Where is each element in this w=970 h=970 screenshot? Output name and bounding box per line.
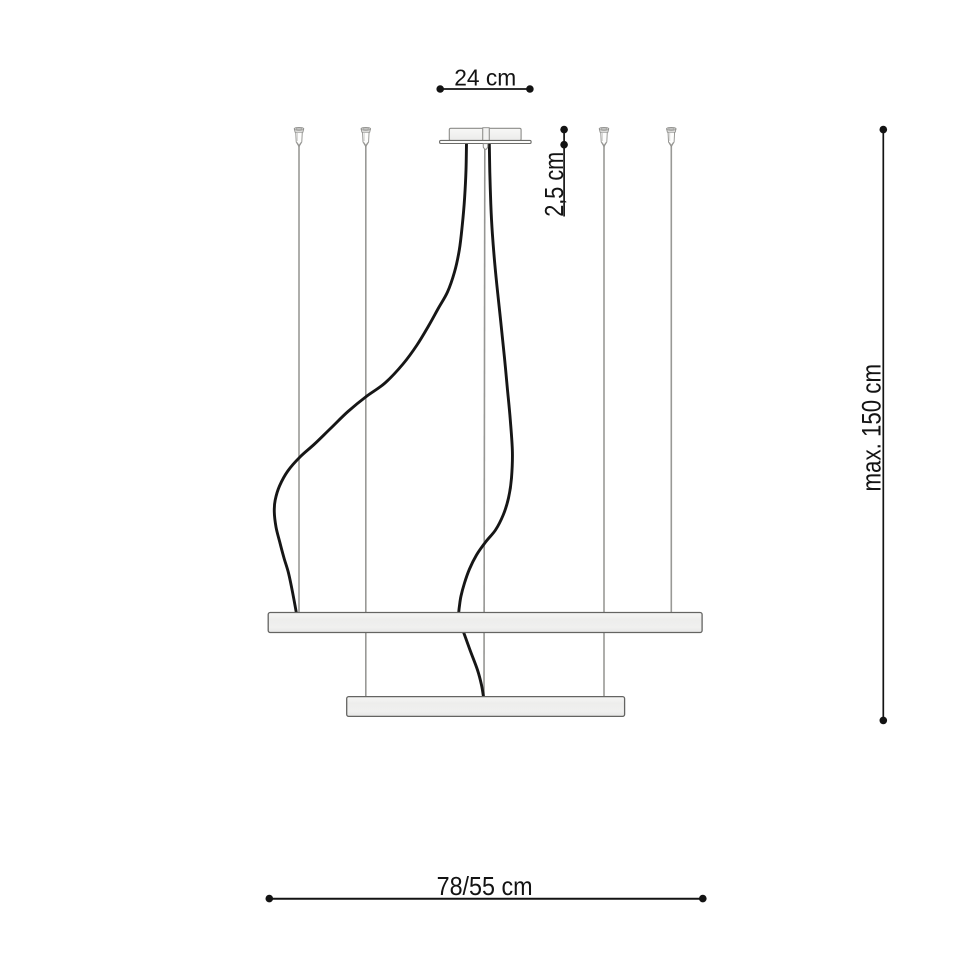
svg-text:24 cm: 24 cm — [454, 64, 516, 90]
svg-text:max. 150 cm: max. 150 cm — [857, 364, 887, 492]
svg-text:78/55 cm: 78/55 cm — [437, 871, 533, 901]
svg-text:2,5 cm: 2,5 cm — [541, 152, 569, 217]
